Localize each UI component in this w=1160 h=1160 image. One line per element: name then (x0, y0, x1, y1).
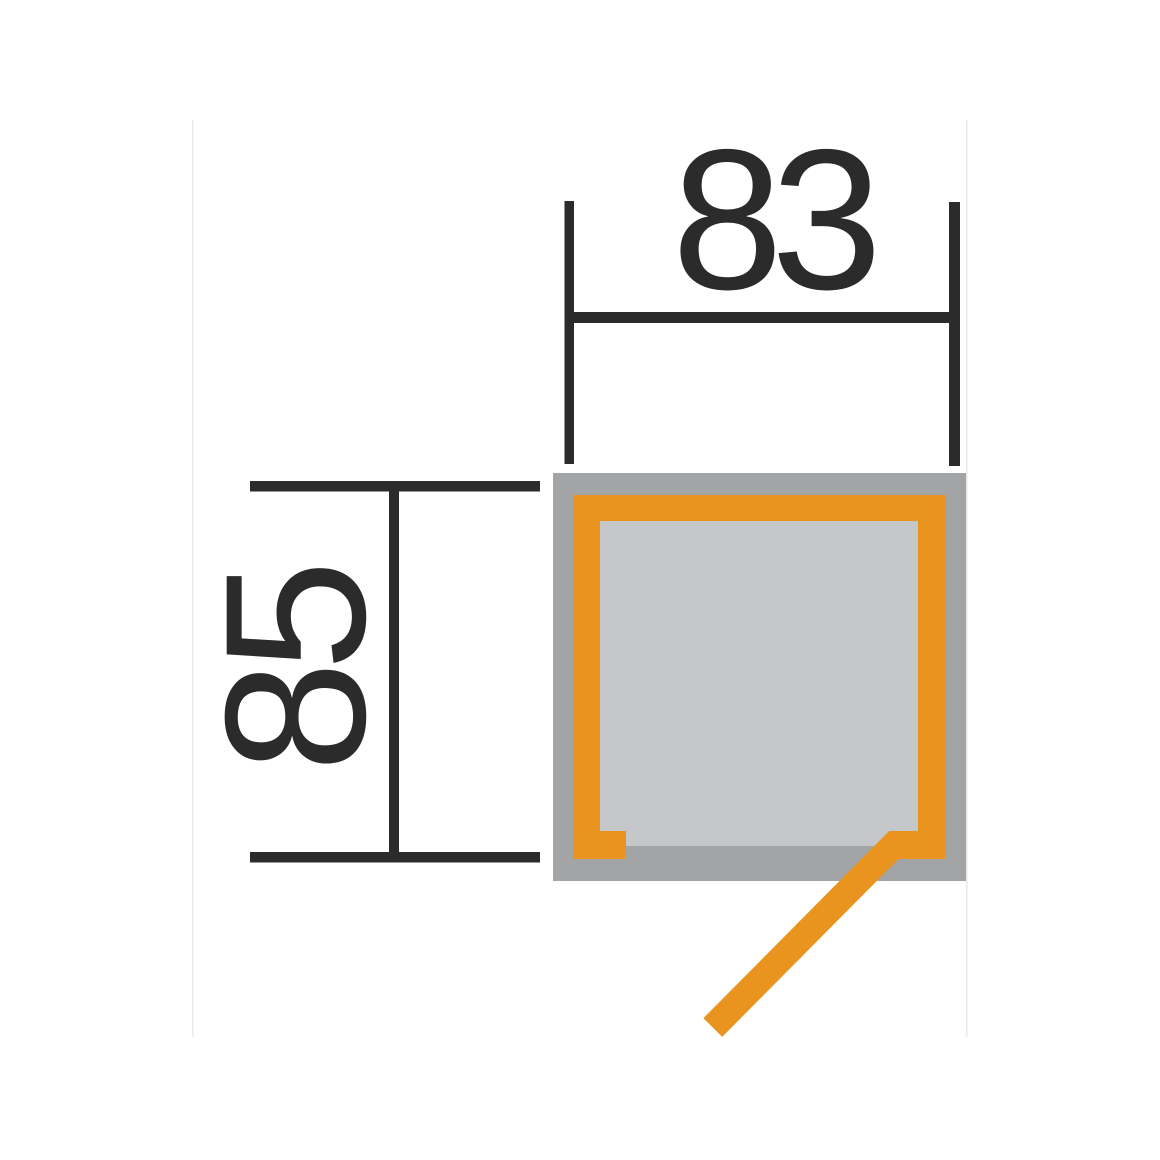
svg-text:85: 85 (184, 568, 407, 772)
svg-text:83: 83 (672, 109, 874, 332)
